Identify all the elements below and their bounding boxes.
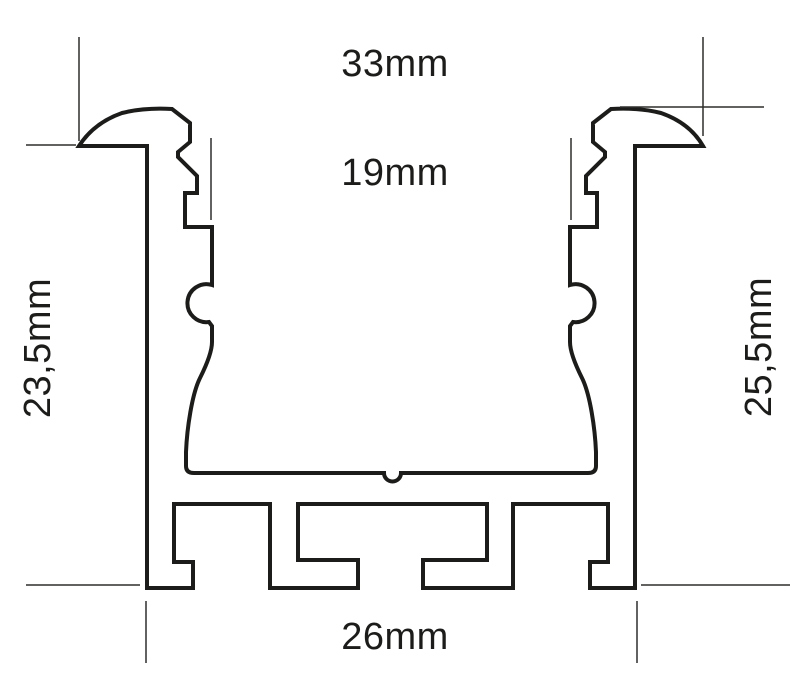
dimension-label-top-width: 33mm: [341, 43, 449, 85]
profile-cross-section-drawing: 33mm 19mm 23,5mm 25,5mm 26mm: [0, 0, 800, 698]
dimension-label-opening-width: 19mm: [341, 152, 449, 194]
dimension-label-right-height: 25,5mm: [738, 277, 780, 417]
technical-drawing-page: 33mm 19mm 23,5mm 25,5mm 26mm: [0, 0, 800, 698]
dimension-label-left-height: 23,5mm: [17, 278, 59, 418]
dimension-label-bottom-width: 26mm: [341, 616, 449, 658]
